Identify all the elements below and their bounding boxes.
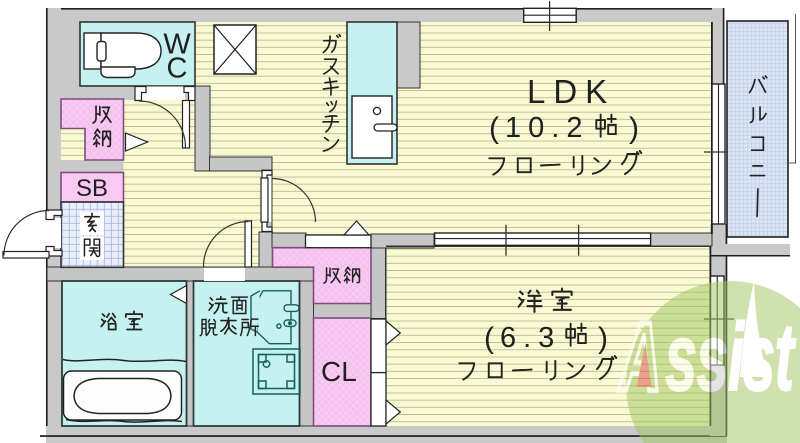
svg-text:(: (: [484, 322, 494, 355]
svg-text:): ): [629, 112, 639, 145]
svg-text:10.2: 10.2: [505, 112, 589, 144]
svg-text:CL: CL: [321, 356, 357, 387]
svg-text:ssist: ssist: [665, 303, 797, 411]
svg-text:C: C: [167, 53, 188, 85]
svg-text:SB: SB: [76, 175, 108, 202]
svg-text:A: A: [618, 304, 661, 413]
svg-text:): ): [598, 322, 608, 355]
svg-text:LDK: LDK: [527, 73, 615, 110]
svg-text:6.3: 6.3: [500, 322, 561, 354]
svg-text:(: (: [489, 112, 499, 145]
